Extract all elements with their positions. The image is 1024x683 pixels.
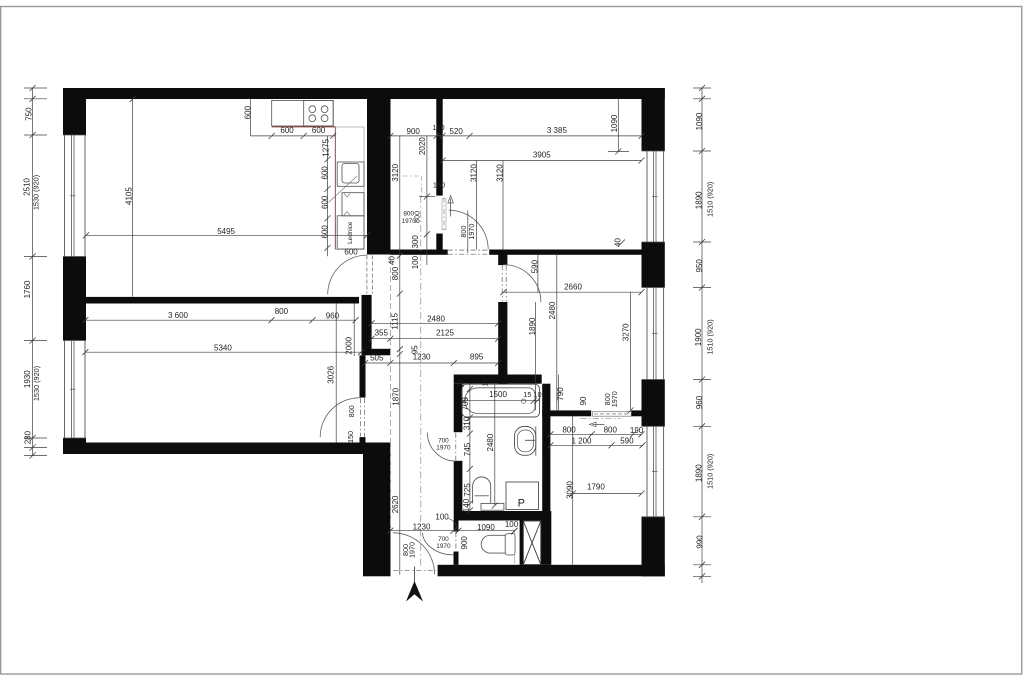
svg-text:40: 40	[388, 256, 397, 265]
svg-text:1500: 1500	[489, 390, 507, 399]
svg-text:100: 100	[411, 255, 420, 269]
svg-text:960: 960	[326, 312, 340, 321]
svg-text:2480: 2480	[548, 301, 557, 319]
svg-text:3905: 3905	[533, 151, 551, 160]
svg-text:10: 10	[480, 378, 489, 386]
svg-text:1530 (920): 1530 (920)	[32, 366, 41, 401]
svg-text:2510: 2510	[23, 177, 32, 195]
svg-text:1230: 1230	[413, 523, 431, 532]
svg-text:3026: 3026	[327, 365, 336, 383]
svg-text:600: 600	[320, 225, 329, 239]
svg-text:700: 700	[438, 536, 449, 543]
svg-text:1890: 1890	[695, 464, 704, 482]
svg-text:150: 150	[346, 431, 355, 443]
svg-text:600: 600	[344, 248, 358, 257]
svg-text:800: 800	[604, 425, 618, 434]
svg-text:2620: 2620	[391, 495, 400, 513]
svg-text:3120: 3120	[496, 164, 505, 182]
svg-text:5495: 5495	[217, 227, 235, 236]
svg-text:15: 15	[457, 379, 466, 387]
svg-text:2000: 2000	[345, 336, 354, 354]
svg-text:950: 950	[695, 259, 704, 273]
svg-text:3 385: 3 385	[547, 126, 568, 135]
svg-text:1970: 1970	[436, 445, 451, 452]
svg-text:1890: 1890	[694, 191, 703, 209]
svg-text:3120: 3120	[470, 164, 479, 182]
svg-text:790: 790	[556, 387, 565, 401]
svg-text:190: 190	[630, 426, 644, 435]
svg-text:590: 590	[531, 259, 540, 273]
svg-text:1970: 1970	[407, 542, 416, 558]
svg-text:1090: 1090	[477, 523, 495, 532]
svg-text:800: 800	[347, 405, 356, 417]
svg-text:900: 900	[407, 127, 421, 136]
svg-text:2480: 2480	[486, 433, 495, 451]
svg-text:800: 800	[413, 211, 422, 223]
svg-text:960: 960	[695, 395, 704, 409]
svg-text:1510 (920): 1510 (920)	[706, 319, 715, 354]
svg-text:1090: 1090	[695, 112, 704, 130]
svg-text:990: 990	[695, 535, 704, 549]
svg-text:1790: 1790	[587, 482, 605, 491]
svg-text:745: 745	[463, 442, 472, 456]
svg-text:90: 90	[579, 396, 588, 405]
svg-text:1530 (920): 1530 (920)	[32, 175, 41, 210]
svg-text:1890: 1890	[528, 317, 537, 335]
svg-text:2660: 2660	[564, 283, 582, 292]
svg-text:1870: 1870	[391, 387, 400, 405]
svg-text:3090: 3090	[565, 481, 574, 499]
svg-text:600: 600	[280, 126, 294, 135]
svg-text:520: 520	[450, 127, 464, 136]
svg-text:1900: 1900	[694, 328, 703, 346]
svg-text:2125: 2125	[436, 328, 454, 337]
svg-text:1115: 1115	[391, 312, 400, 329]
svg-text:750: 750	[25, 107, 34, 121]
svg-text:600: 600	[320, 166, 329, 180]
svg-text:600: 600	[243, 105, 252, 119]
svg-text:1970: 1970	[467, 224, 476, 240]
svg-text:40: 40	[614, 238, 623, 247]
svg-text:4105: 4105	[124, 187, 133, 205]
svg-text:505: 505	[370, 354, 384, 363]
svg-text:100: 100	[435, 512, 449, 521]
svg-text:725: 725	[463, 483, 472, 497]
svg-text:1930: 1930	[23, 370, 32, 388]
svg-text:700: 700	[461, 397, 470, 411]
svg-text:15 10: 15 10	[523, 390, 541, 399]
svg-text:1510 (920): 1510 (920)	[706, 454, 715, 489]
svg-text:1090: 1090	[610, 114, 619, 132]
svg-text:2020: 2020	[418, 137, 427, 155]
svg-text:1275: 1275	[322, 138, 331, 156]
svg-text:3 600: 3 600	[168, 311, 189, 320]
svg-text:895: 895	[470, 353, 484, 362]
svg-text:1970: 1970	[610, 391, 619, 407]
svg-text:700: 700	[438, 438, 449, 445]
svg-text:800: 800	[275, 307, 289, 316]
svg-text:310: 310	[462, 416, 471, 430]
svg-text:900: 900	[460, 536, 469, 550]
svg-text:1970: 1970	[436, 543, 451, 550]
svg-text:1230: 1230	[413, 353, 431, 362]
svg-text:140: 140	[462, 498, 471, 512]
svg-text:800: 800	[562, 425, 576, 434]
svg-text:1 200: 1 200	[571, 437, 592, 446]
svg-text:300: 300	[411, 235, 420, 249]
svg-text:3120: 3120	[391, 163, 400, 181]
svg-text:280: 280	[24, 430, 33, 444]
svg-text:150: 150	[433, 181, 445, 190]
svg-text:2480: 2480	[427, 314, 445, 323]
svg-text:600: 600	[312, 126, 326, 135]
svg-text:150: 150	[432, 123, 444, 132]
svg-text:600: 600	[320, 195, 329, 209]
svg-text:590: 590	[620, 437, 634, 446]
svg-text:800: 800	[391, 266, 400, 280]
svg-text:1760: 1760	[23, 280, 32, 298]
svg-text:355: 355	[375, 329, 389, 338]
svg-text:100: 100	[505, 520, 519, 529]
svg-text:Lednice: Lednice	[347, 221, 354, 244]
svg-text:1510 (920): 1510 (920)	[706, 182, 715, 217]
svg-text:5340: 5340	[214, 344, 232, 353]
svg-text:3270: 3270	[621, 323, 630, 341]
svg-text:P: P	[518, 498, 525, 510]
